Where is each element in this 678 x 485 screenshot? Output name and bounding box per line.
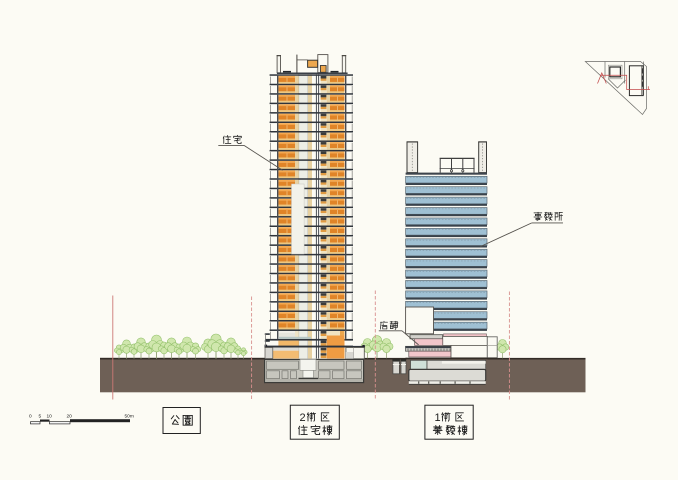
- svg-text:5: 5: [39, 414, 42, 420]
- svg-text:20: 20: [67, 414, 73, 420]
- svg-text:1: 1: [435, 412, 441, 424]
- svg-text:0: 0: [29, 414, 32, 420]
- svg-text:50m: 50m: [125, 414, 134, 420]
- svg-text:10: 10: [47, 414, 53, 420]
- svg-text:2: 2: [300, 412, 306, 424]
